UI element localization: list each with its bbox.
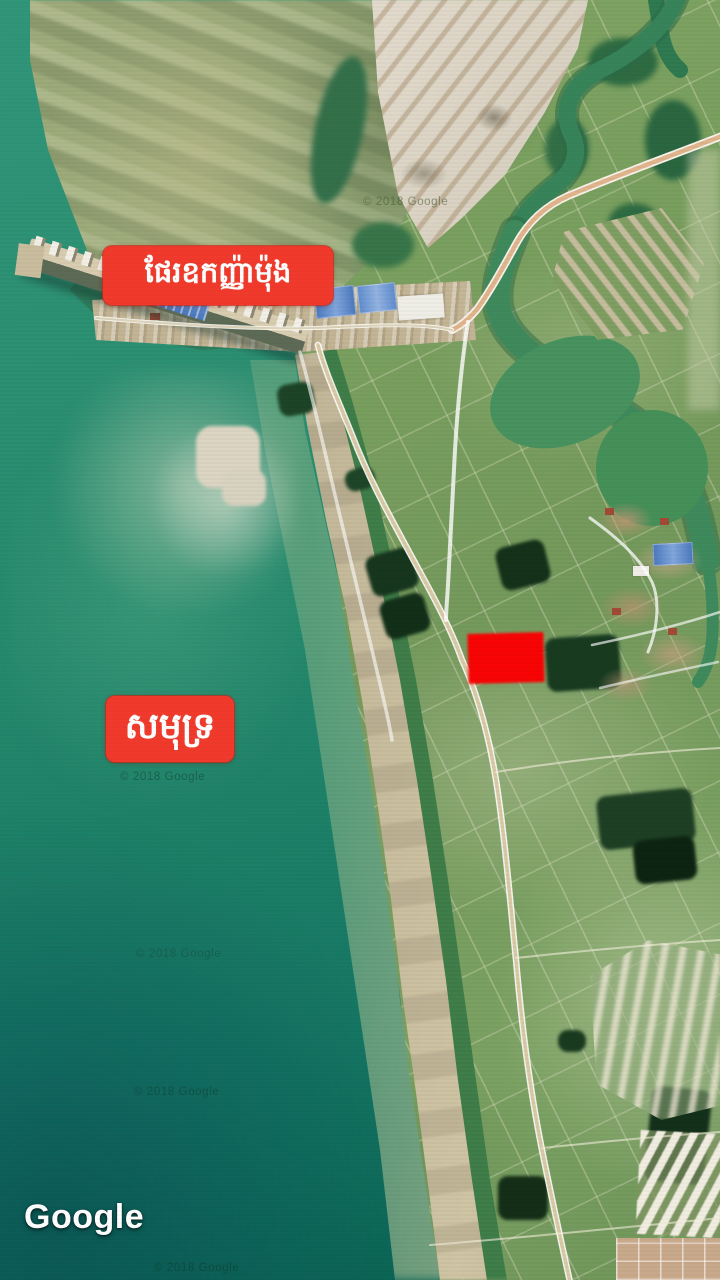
copyright-watermark: © 2018 Google: [134, 1086, 219, 1098]
roads-layer: [0, 0, 720, 1280]
google-wordmark: Google: [24, 1198, 144, 1237]
sea-label: សមុទ្រ: [106, 696, 234, 762]
map-canvas[interactable]: © 2018 Google © 2018 Google © 2018 Googl…: [0, 0, 720, 1280]
marker-rectangle: [467, 632, 544, 684]
copyright-watermark: © 2018 Google: [120, 771, 205, 783]
port-label: ផែរឧកញ្ញ៉ាម៉ុង: [103, 246, 333, 305]
copyright-watermark: © 2018 Google: [363, 196, 448, 208]
copyright-watermark: © 2018 Google: [154, 1262, 239, 1274]
copyright-watermark: © 2018 Google: [136, 948, 221, 960]
